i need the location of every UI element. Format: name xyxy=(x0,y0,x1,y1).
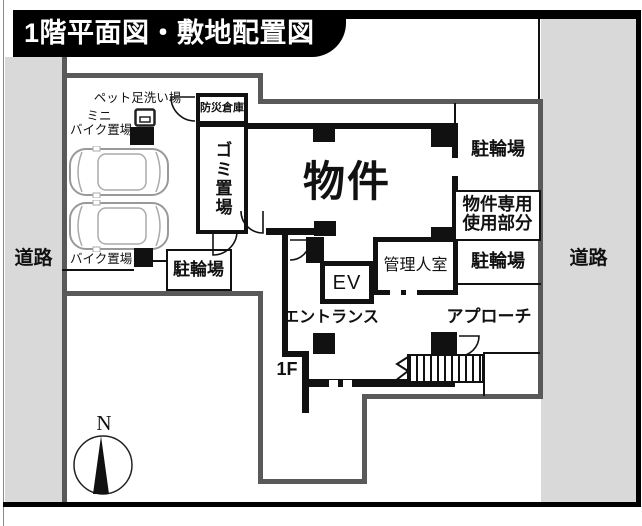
property-label: 物件 xyxy=(268,159,426,205)
page-title: 1階平面図・敷地配置図 xyxy=(13,10,346,56)
pet-wash-icon xyxy=(134,108,156,127)
stair-landing-line-v xyxy=(483,352,485,396)
column-below-property xyxy=(314,221,336,236)
column-ev-corner xyxy=(306,237,324,263)
approach-label: アプローチ xyxy=(440,308,538,327)
right-wall-door-gap xyxy=(452,158,458,176)
manager-room: 管理人室 xyxy=(373,237,458,295)
boundary-top-right xyxy=(258,99,543,104)
manager-door-gap-2 xyxy=(406,289,417,295)
compass-north-label: N xyxy=(92,412,116,435)
title-bar: 1階平面図・敷地配置図 xyxy=(13,10,346,57)
left-page-edge-line xyxy=(3,0,4,526)
elevator-shaft: EV xyxy=(320,261,374,304)
manager-room-label: 管理人室 xyxy=(378,257,453,275)
disaster-storage-room: 防災倉庫 xyxy=(196,93,248,125)
stair-landing-line-h xyxy=(483,352,540,354)
boundary-bottom-right xyxy=(362,394,543,399)
bottom-wall-door-gap-1 xyxy=(329,380,338,387)
boundary-left xyxy=(62,57,67,502)
car-icon-2 xyxy=(68,200,170,252)
column-top-center xyxy=(313,123,335,142)
mini-bike-label-line1: ミニ xyxy=(70,110,128,124)
boundary-mid-horizontal xyxy=(62,291,263,296)
elevator-label: EV xyxy=(325,272,369,294)
column-entrance-bottom xyxy=(313,333,335,354)
mini-bike-stand xyxy=(130,127,154,145)
compass-icon xyxy=(72,434,134,496)
bike-area-column xyxy=(134,248,153,267)
garbage-door-icon-2 xyxy=(240,210,265,235)
mini-bike-label: ミニ バイク置場 xyxy=(70,110,128,138)
bottom-page-edge-line xyxy=(3,502,641,507)
stairs-arrow-icon xyxy=(392,356,412,383)
mini-bike-label-line2: バイク置場 xyxy=(70,124,128,138)
floor-label: 1F xyxy=(271,360,303,380)
garbage-door-icon-1 xyxy=(211,230,238,257)
bike-parking-label: バイク置場 xyxy=(70,253,130,267)
exclusive-use-label: 物件専用 使用部分 xyxy=(456,195,539,234)
boundary-top-left xyxy=(62,73,263,78)
right-strip-line-top xyxy=(454,103,456,124)
wall-below-property xyxy=(266,228,320,235)
disaster-storage-label: 防災倉庫 xyxy=(200,102,244,114)
entrance-label: エントランス xyxy=(280,309,382,327)
boundary-notch-bottom xyxy=(258,479,367,484)
parking-bottom-line xyxy=(62,269,134,271)
bottom-wall-door-gap-2 xyxy=(343,380,352,387)
boundary-notch-right xyxy=(362,394,367,484)
building-top-wall xyxy=(243,123,458,129)
road-right-label: 道路 xyxy=(541,249,636,270)
right-strip-line-mid xyxy=(455,283,541,285)
exclusive-use-line1: 物件専用 xyxy=(456,195,539,214)
disaster-storage-door-icon xyxy=(170,95,197,122)
bicycle-parking-mid-label: 駐輪場 xyxy=(458,252,538,272)
bicycle-parking-left-label: 駐輪場 xyxy=(168,261,229,280)
road-right-edge-line xyxy=(538,19,540,100)
garbage-room-label: ゴミ置場 xyxy=(210,141,235,217)
stairs xyxy=(407,354,484,383)
exclusive-use-box: 物件専用 使用部分 xyxy=(454,190,541,241)
car-icon-1 xyxy=(68,146,170,198)
right-page-edge-line xyxy=(636,10,641,507)
boundary-notch-left xyxy=(258,293,263,484)
exclusive-use-line2: 使用部分 xyxy=(456,214,539,233)
boundary-right xyxy=(538,99,543,399)
column-approach xyxy=(431,332,457,355)
site-plan-page: 1階平面図・敷地配置図 道路 道路 ペット足洗い場 ミニ バイク置場 xyxy=(0,0,642,526)
road-left xyxy=(5,57,62,502)
manager-door-gap-1 xyxy=(390,289,401,295)
bicycle-parking-top-label: 駐輪場 xyxy=(458,140,538,160)
road-left-label: 道路 xyxy=(5,249,62,270)
